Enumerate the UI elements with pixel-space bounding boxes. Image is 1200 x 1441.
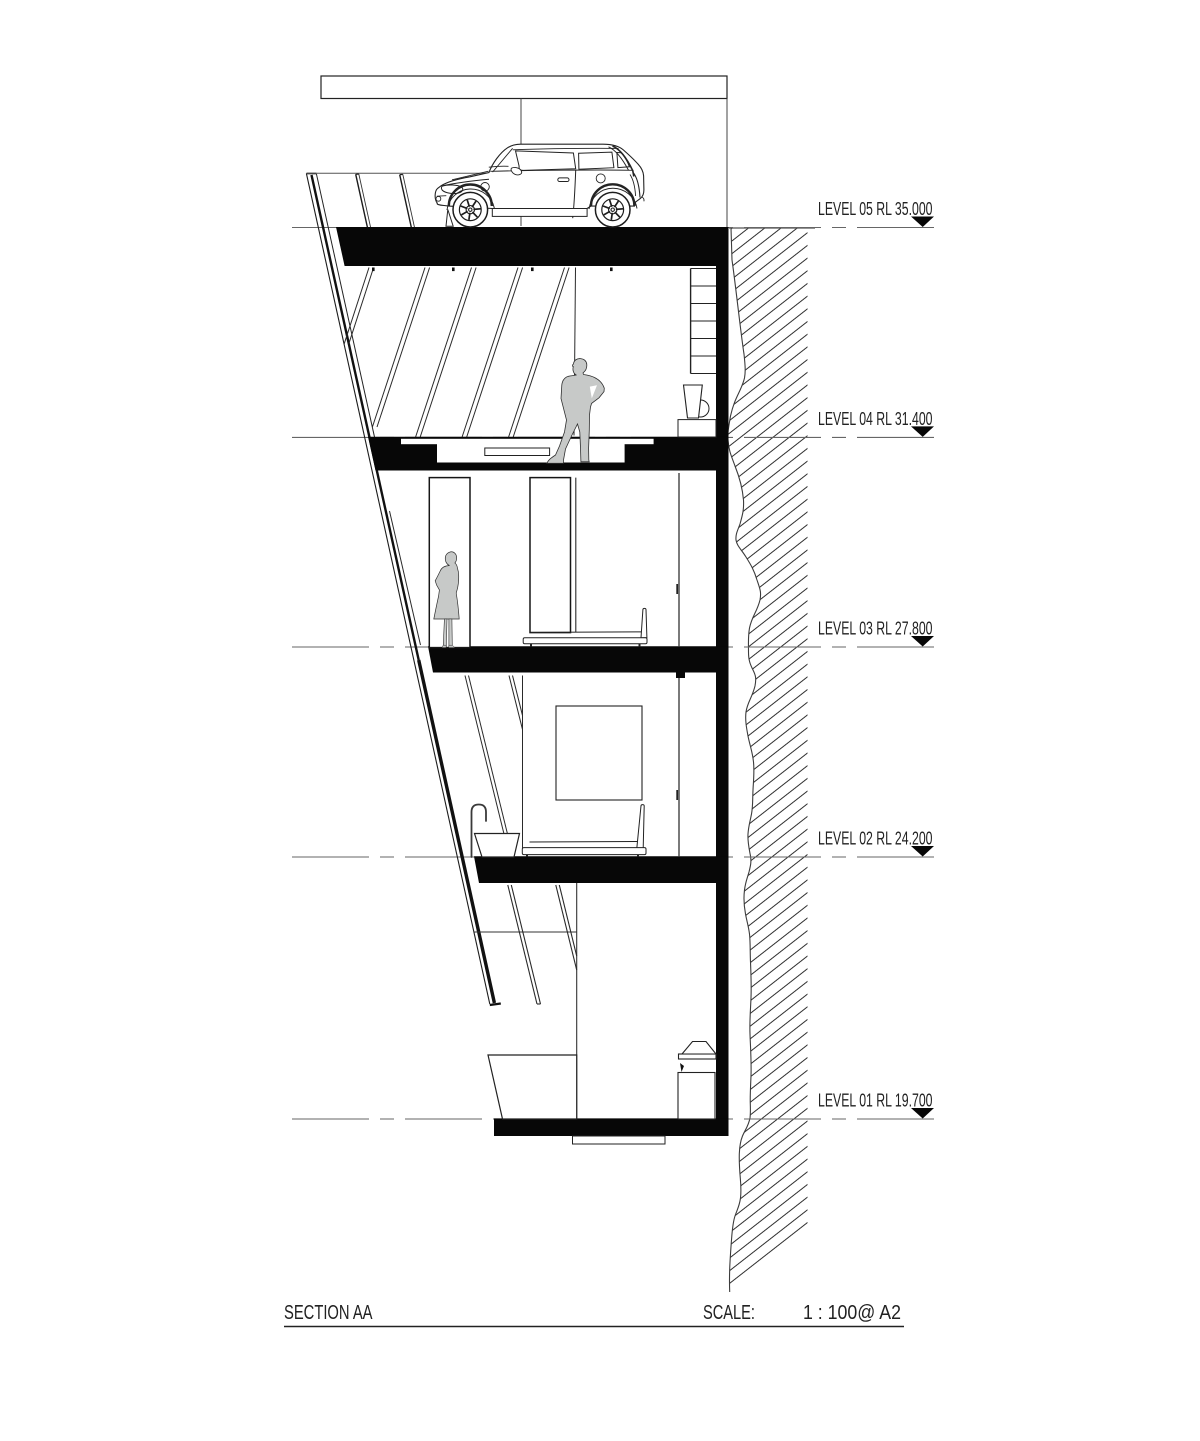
- svg-text:SECTION AA: SECTION AA: [284, 1302, 373, 1324]
- svg-text:LEVEL 02 RL 24.200: LEVEL 02 RL 24.200: [818, 828, 933, 849]
- svg-text:LEVEL 01 RL 19.700: LEVEL 01 RL 19.700: [818, 1090, 933, 1111]
- svg-text:1 : 100@ A2: 1 : 100@ A2: [803, 1302, 901, 1324]
- svg-text:SCALE:: SCALE:: [703, 1302, 755, 1324]
- svg-text:LEVEL 04 RL 31.400: LEVEL 04 RL 31.400: [818, 408, 933, 429]
- svg-text:LEVEL 05 RL 35.000: LEVEL 05 RL 35.000: [818, 198, 933, 219]
- svg-text:LEVEL 03 RL 27.800: LEVEL 03 RL 27.800: [818, 618, 933, 639]
